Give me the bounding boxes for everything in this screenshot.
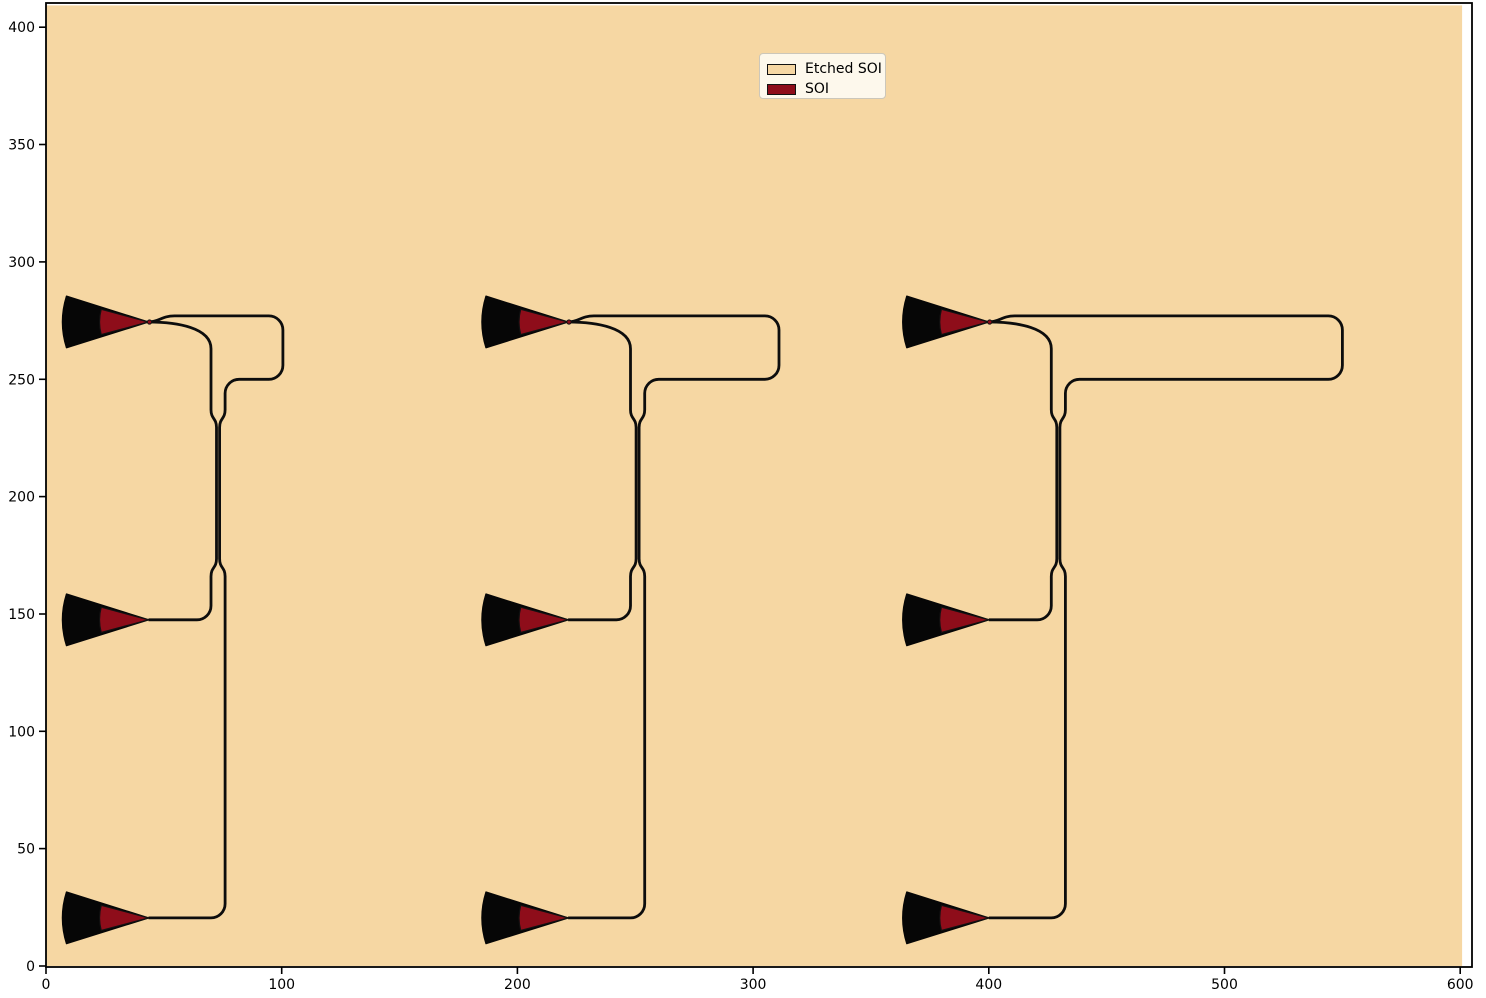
x-tick-label: 400	[975, 977, 1002, 993]
x-tick-label: 100	[268, 977, 295, 993]
y-tick-label: 150	[8, 607, 35, 623]
y-tick-label: 350	[8, 138, 35, 154]
y-tick-label: 0	[26, 959, 35, 975]
gc-tip-dot	[567, 320, 571, 324]
etched-soi-region	[46, 5, 1462, 966]
gc-tip-dot	[147, 320, 151, 324]
y-tick-label: 100	[8, 724, 35, 740]
y-tick-label: 250	[8, 372, 35, 388]
gc-tip-dot	[988, 320, 992, 324]
y-tick-label: 200	[8, 490, 35, 506]
plot-canvas: 0100200300400500600050100150200250300350…	[0, 0, 1486, 998]
y-tick-label: 400	[8, 20, 35, 36]
y-tick-label: 50	[17, 842, 35, 858]
legend: Etched SOI SOI	[759, 53, 886, 99]
y-tick-label: 300	[8, 255, 35, 271]
legend-label-etched-soi: Etched SOI	[805, 59, 882, 79]
legend-entry-soi: SOI	[767, 79, 879, 99]
legend-swatch-etched-soi	[767, 64, 796, 75]
x-tick-label: 500	[1211, 977, 1238, 993]
legend-label-soi: SOI	[805, 79, 829, 99]
x-tick-label: 200	[504, 977, 531, 993]
figure: 0100200300400500600050100150200250300350…	[0, 0, 1486, 998]
x-tick-label: 0	[42, 977, 51, 993]
x-tick-label: 600	[1447, 977, 1474, 993]
legend-swatch-soi	[767, 84, 796, 95]
x-tick-label: 300	[740, 977, 767, 993]
legend-entry-etched-soi: Etched SOI	[767, 59, 879, 79]
